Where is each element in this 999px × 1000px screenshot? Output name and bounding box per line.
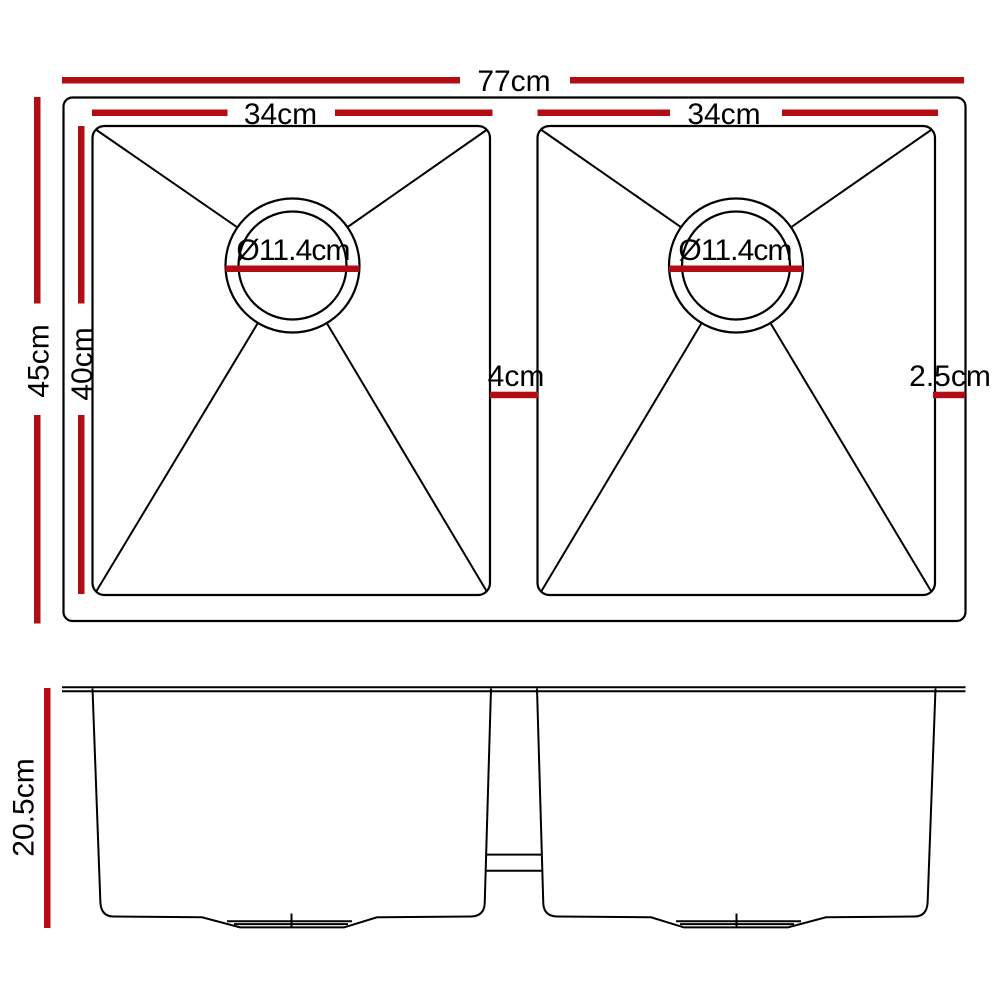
svg-text:77cm: 77cm [477,65,550,98]
svg-text:Ø11.4cm: Ø11.4cm [678,234,791,267]
svg-text:34cm: 34cm [244,98,317,131]
svg-text:45cm: 45cm [23,324,56,397]
svg-text:40cm: 40cm [66,327,99,400]
svg-text:Ø11.4cm: Ø11.4cm [236,234,349,267]
svg-text:20.5cm: 20.5cm [8,758,41,856]
svg-text:34cm: 34cm [687,98,760,131]
svg-text:2.5cm: 2.5cm [909,360,991,393]
svg-text:4cm: 4cm [488,360,545,393]
